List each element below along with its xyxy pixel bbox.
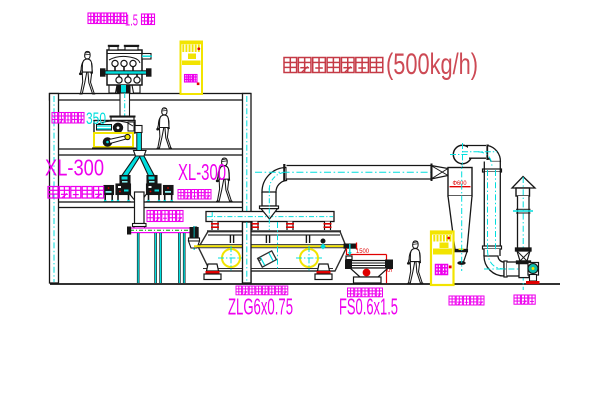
svg-text:(500kg/h): (500kg/h) [386,48,478,81]
svg-text:FS0.6x1.5: FS0.6x1.5 [339,294,398,320]
svg-text:Φ600: Φ600 [453,180,468,187]
svg-text:XL-300: XL-300 [45,155,104,181]
svg-text:350: 350 [86,109,106,128]
svg-text:1500: 1500 [356,248,369,255]
svg-text:1.5: 1.5 [125,13,138,30]
svg-text:ZLG6x0.75: ZLG6x0.75 [228,294,293,320]
svg-text:XL-300: XL-300 [178,159,226,185]
